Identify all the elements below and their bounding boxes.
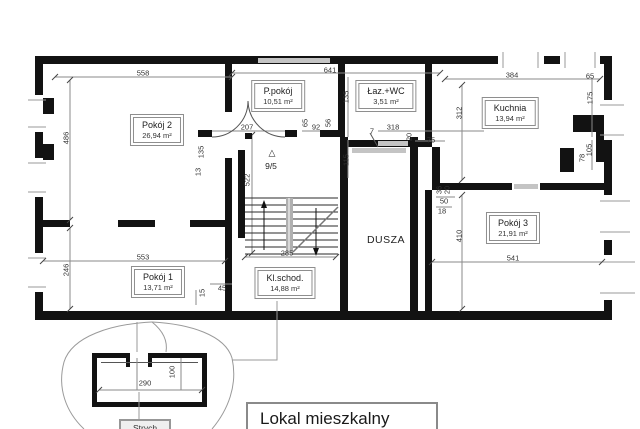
room-label: Pokój 113,71 m² bbox=[131, 266, 185, 298]
room-label: Łaz.+WC3,51 m² bbox=[355, 80, 416, 112]
room-area: 10,51 m² bbox=[263, 97, 293, 106]
room-label: Kuchnia13,94 m² bbox=[482, 97, 539, 129]
room-name: Pokój 3 bbox=[498, 218, 528, 228]
dimension-label: 486 bbox=[62, 132, 70, 145]
room-name: Kuchnia bbox=[494, 103, 527, 113]
dimension-label: 56 bbox=[324, 119, 332, 127]
drawing-title: Lokal mieszkalny bbox=[260, 409, 389, 428]
dimension-label: 410 bbox=[455, 230, 463, 243]
dimension-label: 13 bbox=[194, 168, 202, 176]
dimension-label: 18 bbox=[438, 207, 446, 215]
dimension-label: 135 bbox=[197, 146, 205, 159]
dimension-label: 78 bbox=[578, 154, 586, 162]
dimension-label: 553 bbox=[137, 253, 150, 261]
floorplan-linework bbox=[0, 0, 640, 429]
room-label: P.pokój10,51 m² bbox=[251, 80, 305, 112]
room-label: Pokój 226,94 m² bbox=[130, 114, 184, 146]
floorplan: DUSZA △ 9/5 Strych Lokal mieszkalny Pokó… bbox=[0, 0, 640, 429]
dimension-label: 65 bbox=[301, 119, 309, 127]
room-name: Kl.schod. bbox=[266, 273, 303, 283]
dimension-label: 65 bbox=[586, 72, 594, 80]
dimension-label: 558 bbox=[137, 69, 150, 77]
dimension-label: 20 bbox=[405, 133, 413, 141]
room-area: 14,88 m² bbox=[266, 284, 303, 293]
dimension-label: 246 bbox=[62, 264, 70, 277]
room-label: Pokój 321,91 m² bbox=[486, 212, 540, 244]
dimension-label: 541 bbox=[507, 254, 520, 262]
dimension-label: 7 bbox=[370, 127, 374, 135]
inset-title-box: Strych bbox=[119, 419, 171, 429]
dimension-label: 15 bbox=[198, 289, 206, 297]
room-name: P.pokój bbox=[263, 86, 293, 96]
dimension-label: 522 bbox=[243, 174, 251, 187]
inset-title: Strych bbox=[133, 423, 157, 429]
stair-level-label: 9/5 bbox=[265, 161, 277, 171]
dimension-label: 115 bbox=[342, 154, 350, 166]
room-area: 21,91 m² bbox=[498, 229, 528, 238]
windows-group bbox=[28, 52, 635, 300]
dimension-label: 135 bbox=[342, 91, 350, 104]
shaft-label: DUSZA bbox=[367, 234, 405, 246]
room-name: Łaz.+WC bbox=[367, 86, 404, 96]
dimension-label: 290 bbox=[139, 379, 152, 387]
room-area: 3,51 m² bbox=[367, 97, 404, 106]
dimension-label: 285 bbox=[281, 249, 294, 257]
dimension-label: 92 bbox=[312, 123, 320, 131]
dimension-label: 105 bbox=[585, 144, 593, 157]
dimension-label: 207 bbox=[241, 123, 254, 131]
dimension-label: 318 bbox=[387, 123, 400, 131]
room-area: 26,94 m² bbox=[142, 131, 172, 140]
dimension-label: 20 bbox=[443, 186, 451, 194]
drawing-title-box: Lokal mieszkalny bbox=[246, 402, 438, 429]
dimension-label: 45 bbox=[218, 284, 226, 292]
room-label: Kl.schod.14,88 m² bbox=[254, 267, 315, 299]
dimension-label: 312 bbox=[455, 107, 463, 120]
room-area: 13,94 m² bbox=[494, 114, 527, 123]
dimension-label: 384 bbox=[506, 71, 519, 79]
dimension-label: 75 bbox=[427, 136, 435, 144]
dimension-label: 50 bbox=[440, 197, 448, 205]
dimension-label: 641 bbox=[324, 66, 337, 74]
stair-direction-icon: △ bbox=[269, 148, 276, 159]
room-area: 13,71 m² bbox=[143, 283, 173, 292]
room-name: Pokój 1 bbox=[143, 272, 173, 282]
room-name: Pokój 2 bbox=[142, 120, 172, 130]
dimension-label: 100 bbox=[168, 366, 176, 379]
dimension-label: 175 bbox=[586, 92, 594, 105]
